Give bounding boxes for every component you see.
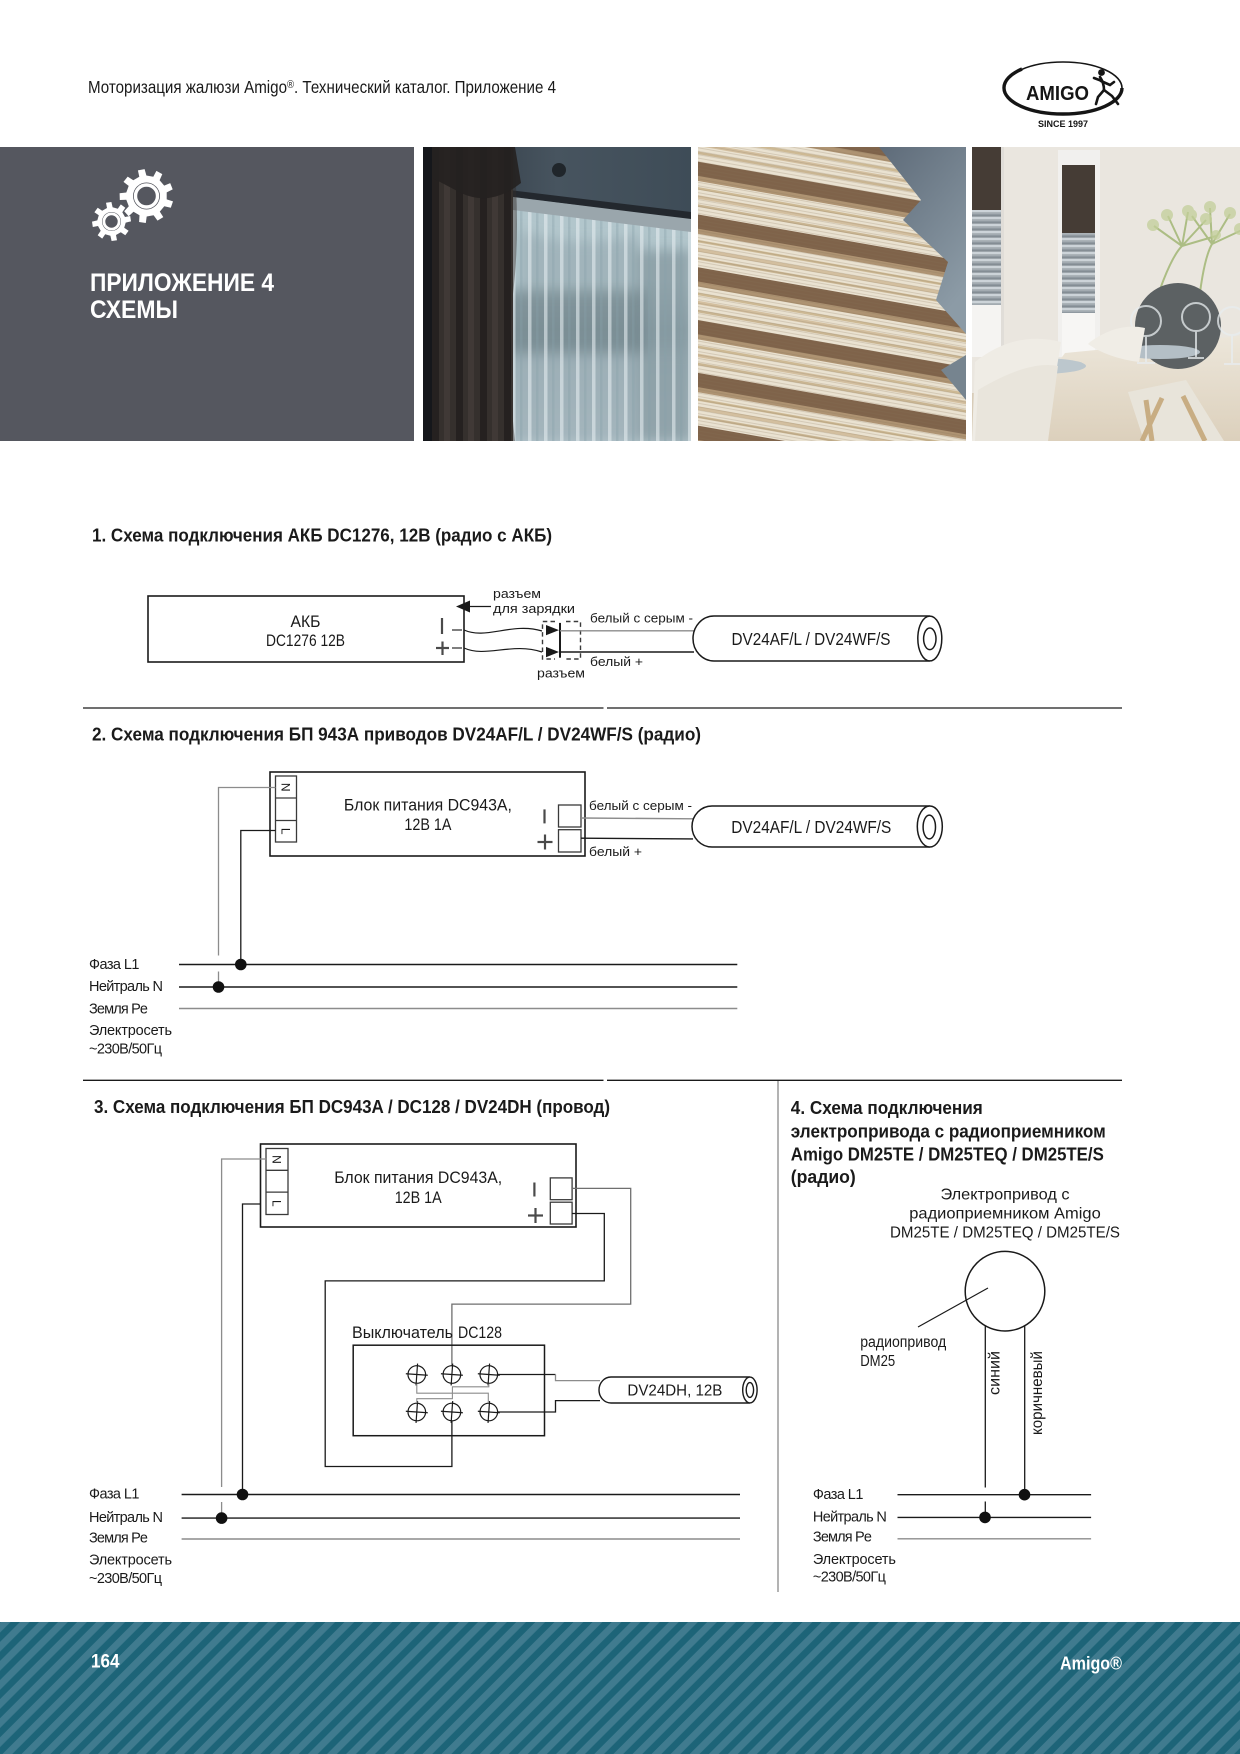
svg-text:164: 164 [91, 1652, 120, 1673]
svg-text:Электросеть: Электросеть [813, 1552, 896, 1568]
svg-text:Электросеть: Электросеть [89, 1553, 172, 1569]
svg-text:4. Схема подключения: 4. Схема подключения [791, 1097, 983, 1118]
svg-text:DC128: DC128 [458, 1324, 502, 1342]
svg-text:N: N [270, 1155, 284, 1164]
svg-text:(радио): (радио) [791, 1166, 856, 1187]
svg-text:Amigo®: Amigo® [1060, 1654, 1122, 1674]
svg-text:Земля Pe: Земля Pe [813, 1529, 872, 1545]
svg-text:Моторизация жалюзи Amigo®. Тех: Моторизация жалюзи Amigo®. Технический к… [88, 77, 556, 97]
svg-text:Земля Pe: Земля Pe [89, 1001, 148, 1017]
svg-text:DC1276 12В: DC1276 12В [266, 632, 345, 650]
svg-text:белый с серым -: белый с серым - [590, 610, 693, 625]
svg-text:синий: синий [987, 1351, 1004, 1395]
svg-text:Нейтраль N: Нейтраль N [89, 1510, 163, 1526]
svg-text:12В 1А: 12В 1А [395, 1188, 443, 1207]
svg-text:СХЕМЫ: СХЕМЫ [90, 296, 178, 324]
svg-text:Электропривод с: Электропривод с [941, 1186, 1070, 1203]
svg-text:~230В/50Гц: ~230В/50Гц [89, 1571, 162, 1587]
svg-text:12В 1А: 12В 1А [404, 815, 452, 834]
svg-text:2. Схема подключения БП 943А п: 2. Схема подключения БП 943А приводов DV… [92, 724, 701, 745]
svg-text:1. Схема подключения АКБ DC127: 1. Схема подключения АКБ DC1276, 12В (ра… [92, 525, 552, 546]
svg-text:Блок питания DC943A,: Блок питания DC943A, [334, 1168, 502, 1187]
svg-text:Выключатель: Выключатель [352, 1324, 453, 1342]
svg-text:DV24DH, 12В: DV24DH, 12В [627, 1382, 722, 1399]
svg-text:Фаза L1: Фаза L1 [813, 1487, 864, 1503]
svg-text:Фаза L1: Фаза L1 [89, 1487, 140, 1503]
svg-text:Фаза L1: Фаза L1 [89, 957, 140, 973]
svg-text:Нейтраль N: Нейтраль N [89, 979, 163, 995]
svg-text:DV24AF/L / DV24WF/S: DV24AF/L / DV24WF/S [732, 629, 891, 649]
svg-text:AMIGO: AMIGO [1026, 83, 1089, 105]
svg-text:для зарядки: для зарядки [493, 601, 575, 616]
svg-text:Amigo DM25TE / DM25TEQ / DM25T: Amigo DM25TE / DM25TEQ / DM25TE/S [791, 1144, 1104, 1165]
svg-text:L: L [279, 828, 293, 835]
svg-text:DM25: DM25 [860, 1353, 895, 1370]
svg-text:разъем: разъем [493, 586, 541, 601]
svg-text:белый +: белый + [590, 654, 643, 669]
svg-text:белый +: белый + [589, 844, 642, 859]
svg-text:АКБ: АКБ [291, 613, 321, 631]
svg-text:Блок питания DC943A,: Блок питания DC943A, [344, 796, 512, 815]
svg-text:Нейтраль N: Нейтраль N [813, 1509, 887, 1525]
svg-text:разъем: разъем [537, 666, 585, 681]
svg-text:коричневый: коричневый [1029, 1351, 1046, 1435]
svg-text:Электросеть: Электросеть [89, 1023, 172, 1039]
svg-text:DM25TE / DM25TEQ / DM25TE/S: DM25TE / DM25TEQ / DM25TE/S [890, 1224, 1120, 1241]
svg-text:DV24AF/L / DV24WF/S: DV24AF/L / DV24WF/S [731, 817, 891, 837]
svg-text:~230В/50Гц: ~230В/50Гц [89, 1041, 162, 1057]
svg-text:электропривода с радиоприемник: электропривода с радиоприемником [791, 1121, 1106, 1142]
svg-text:~230В/50Гц: ~230В/50Гц [813, 1570, 886, 1586]
svg-text:радиопривод: радиопривод [860, 1334, 946, 1351]
svg-text:радиоприемником Amigo: радиоприемником Amigo [909, 1205, 1101, 1222]
svg-text:3. Схема подключения БП DC943A: 3. Схема подключения БП DC943A / DC128 /… [94, 1096, 610, 1117]
svg-text:ПРИЛОЖЕНИЕ 4: ПРИЛОЖЕНИЕ 4 [90, 269, 274, 297]
svg-text:L: L [270, 1200, 284, 1207]
svg-text:Земля Pe: Земля Pe [89, 1531, 148, 1547]
svg-text:N: N [279, 783, 293, 792]
svg-text:SINCE 1997: SINCE 1997 [1038, 119, 1088, 129]
svg-text:белый с серым -: белый с серым - [589, 798, 692, 813]
